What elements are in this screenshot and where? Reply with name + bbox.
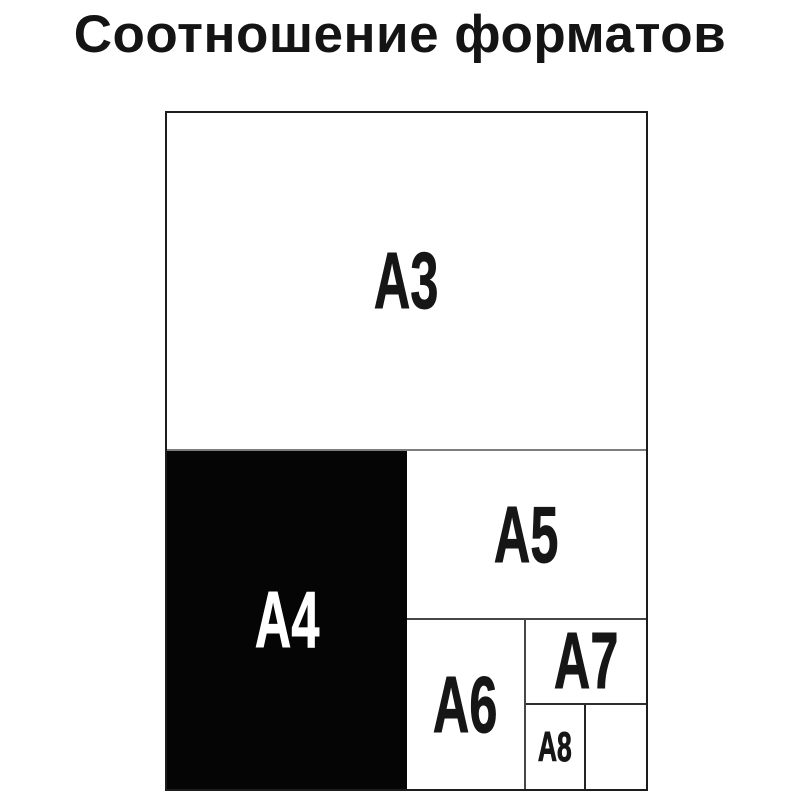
format-a5-label: A5 bbox=[494, 495, 558, 575]
format-a8-label: A8 bbox=[538, 726, 572, 768]
paper-format-diagram: A3 A4 A5 A6 A7 A8 bbox=[165, 111, 648, 791]
format-a3-label: A3 bbox=[374, 241, 438, 321]
page: Соотношение форматов A3 A4 A5 A6 A7 A8 bbox=[0, 0, 800, 800]
format-a6-region: A6 bbox=[407, 620, 527, 789]
format-a6-label: A6 bbox=[433, 665, 497, 745]
format-a5-region: A5 bbox=[407, 451, 647, 620]
format-a7-label: A7 bbox=[554, 621, 618, 701]
format-a4-label: A4 bbox=[255, 580, 319, 660]
format-a4-region: A4 bbox=[167, 451, 407, 789]
format-a7-region: A7 bbox=[526, 620, 646, 705]
format-a3-region: A3 bbox=[167, 113, 646, 451]
format-empty-cell bbox=[586, 705, 646, 790]
format-a8-region: A8 bbox=[526, 705, 586, 790]
page-title: Соотношение форматов bbox=[0, 8, 800, 61]
